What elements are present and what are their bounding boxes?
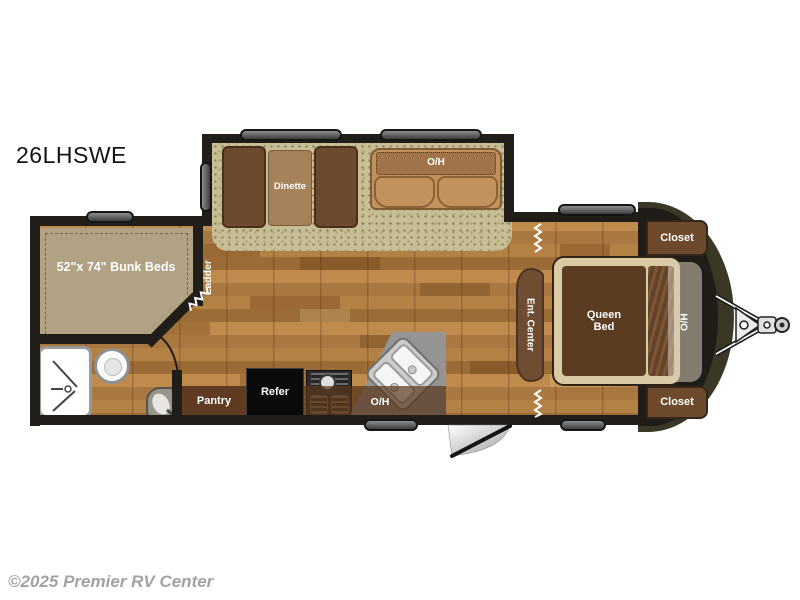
curtain-zigzag-bedroom-top <box>532 222 544 256</box>
slideout-right-wall <box>504 134 514 222</box>
bunk-beds-label: 52"x 74" Bunk Beds <box>46 258 186 278</box>
sink-drain <box>406 363 419 376</box>
model-title: 26LHSWE <box>16 142 127 169</box>
kitchen-overhead-label: O/H <box>352 392 408 414</box>
sofa-overhead-label: O/H <box>406 152 466 172</box>
sofa-cushion-right <box>437 176 498 208</box>
bed-overhead-label: O/H <box>672 292 698 352</box>
watermark: ©2025 Premier RV Center <box>8 572 213 592</box>
closet-top-label: Closet <box>646 220 708 256</box>
sofa-cushion-left <box>374 176 435 208</box>
closet-bottom-label: Closet <box>646 386 708 419</box>
bunk-window <box>86 211 134 223</box>
slideout-side-window <box>200 162 212 212</box>
slideout-window-right <box>380 129 482 141</box>
entry-door-swing <box>442 420 520 462</box>
hitch <box>714 290 798 360</box>
bath-sink-bowl <box>104 358 122 376</box>
pantry-label: Pantry <box>180 390 248 412</box>
floor-plank <box>250 296 340 309</box>
floorplan-image: 26LHSWE 52"x 74" Bunk Beds Ladder <box>0 0 800 600</box>
queen-bed-label: Queen Bed <box>578 296 630 346</box>
dinette-bench-right <box>314 146 358 228</box>
shower-glyph <box>41 349 95 421</box>
bath-sink <box>94 348 130 384</box>
dinette-bench-left <box>222 146 266 228</box>
main-top-window <box>558 204 636 216</box>
bunk-bottom-wall <box>30 334 152 344</box>
floor-plank <box>300 257 380 270</box>
bottom-window-right <box>560 419 606 431</box>
refrigerator-label: Refer <box>246 368 304 416</box>
slideout-window-left <box>240 129 342 141</box>
bottom-window-left <box>364 419 418 431</box>
floor-plank <box>300 309 350 322</box>
bath-wall-stub <box>172 370 182 416</box>
floor-plank <box>420 283 490 296</box>
curtain-zigzag-bedroom-bottom <box>532 388 544 420</box>
dinette-label: Dinette <box>266 180 314 194</box>
ent-center-label: Ent. Center <box>516 268 544 382</box>
rear-wall <box>30 216 40 426</box>
shower <box>38 346 92 418</box>
